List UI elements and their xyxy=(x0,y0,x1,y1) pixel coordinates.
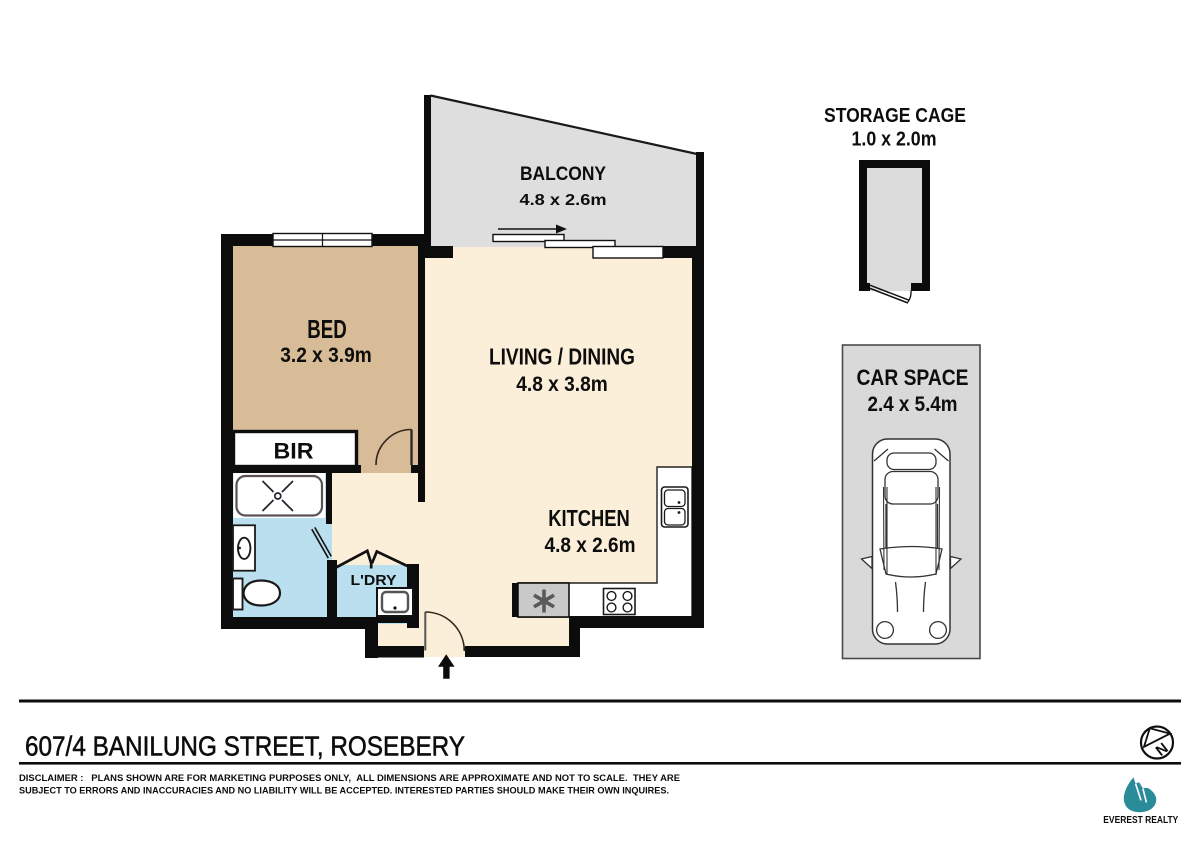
svg-text:BED: BED xyxy=(307,316,347,344)
svg-text:BIR: BIR xyxy=(274,439,314,464)
svg-text:4.8 x 3.8m: 4.8 x 3.8m xyxy=(516,373,608,396)
svg-text:BALCONY: BALCONY xyxy=(520,164,606,185)
svg-text:4.8 x 2.6m: 4.8 x 2.6m xyxy=(545,534,636,557)
svg-text:KITCHEN: KITCHEN xyxy=(548,505,630,531)
svg-text:DISCLAIMER : PLANS SHOWN ARE: DISCLAIMER : PLANS SHOWN ARE FOR MARKETI… xyxy=(19,773,680,783)
svg-text:EVEREST REALTY: EVEREST REALTY xyxy=(1103,814,1178,826)
svg-text:1.0 x 2.0m: 1.0 x 2.0m xyxy=(852,129,937,151)
svg-text:CAR SPACE: CAR SPACE xyxy=(857,365,969,390)
svg-text:STORAGE CAGE: STORAGE CAGE xyxy=(824,104,966,127)
svg-text:607/4 BANILUNG STREET, ROSEBER: 607/4 BANILUNG STREET, ROSEBERY xyxy=(25,731,465,762)
svg-text:4.8 x 2.6m: 4.8 x 2.6m xyxy=(520,192,607,209)
svg-text:3.2 x 3.9m: 3.2 x 3.9m xyxy=(280,344,372,367)
svg-text:2.4 x 5.4m: 2.4 x 5.4m xyxy=(868,393,958,416)
svg-text:L'DRY: L'DRY xyxy=(351,572,397,589)
svg-text:SUBJECT TO ERRORS AND INACCURA: SUBJECT TO ERRORS AND INACCURACIES AND N… xyxy=(19,786,669,796)
svg-text:LIVING / DINING: LIVING / DINING xyxy=(489,344,635,370)
